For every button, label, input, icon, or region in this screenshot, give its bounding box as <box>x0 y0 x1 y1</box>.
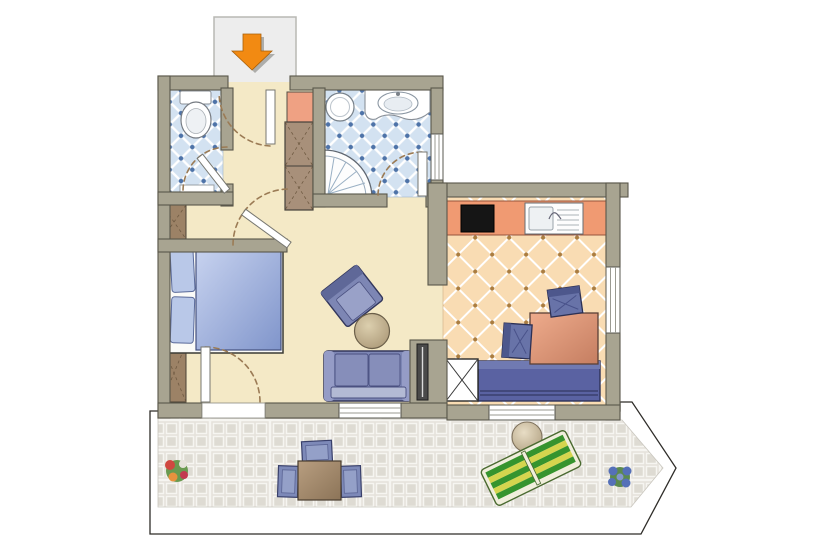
wall-south-3 <box>401 403 447 418</box>
dining-chair-west <box>502 323 532 359</box>
kitchen-east-window <box>606 267 620 333</box>
pillow-right <box>170 297 195 344</box>
entrance-vestibule <box>214 17 296 84</box>
kitchen-south-window <box>489 405 555 420</box>
outdoor-chair-west <box>277 466 298 498</box>
wall-kitchen-north <box>428 183 628 197</box>
wall-bath-west <box>313 88 325 207</box>
wall-bath-south-west <box>313 194 387 207</box>
outdoor-chair-north <box>301 440 332 464</box>
outdoor-table <box>298 461 341 500</box>
wall-bath-east-upper <box>431 88 443 134</box>
living-south-window <box>339 403 401 418</box>
wall-south-4 <box>447 405 489 420</box>
wardrobe-cabinet <box>285 122 313 210</box>
floorplan-canvas <box>0 0 820 560</box>
cooktop <box>461 205 494 232</box>
vanity-sink <box>365 89 430 120</box>
faucet-icon <box>396 92 400 96</box>
wall-south-5 <box>555 405 620 420</box>
terrace <box>150 402 676 534</box>
wall-wc-east-upper <box>221 88 233 150</box>
wall-south-2 <box>265 403 339 418</box>
floorplan-svg <box>0 0 820 560</box>
round-coffee-table <box>355 314 390 349</box>
pillow-left <box>170 247 195 292</box>
wall-wc-south <box>158 192 233 205</box>
toilet <box>180 91 211 138</box>
two-seat-sofa <box>324 351 412 401</box>
double-bed <box>167 242 283 353</box>
outdoor-chair-east <box>340 466 361 498</box>
round-washbasin <box>326 93 354 121</box>
wall-bedroom-north <box>158 239 287 252</box>
terrace-paving <box>158 418 663 507</box>
closet-shelf <box>287 92 313 122</box>
wall-kitchen-west-upper <box>428 183 447 285</box>
wall-kitchen-east-upper <box>606 183 620 267</box>
dining-chair-north <box>547 286 582 317</box>
hall-closet <box>285 92 313 210</box>
kitchen-sink <box>525 203 583 234</box>
bathroom-east-window <box>431 134 443 180</box>
flower-pot-right <box>608 467 632 488</box>
wall-south-1 <box>158 403 202 418</box>
dining-table <box>530 313 598 364</box>
